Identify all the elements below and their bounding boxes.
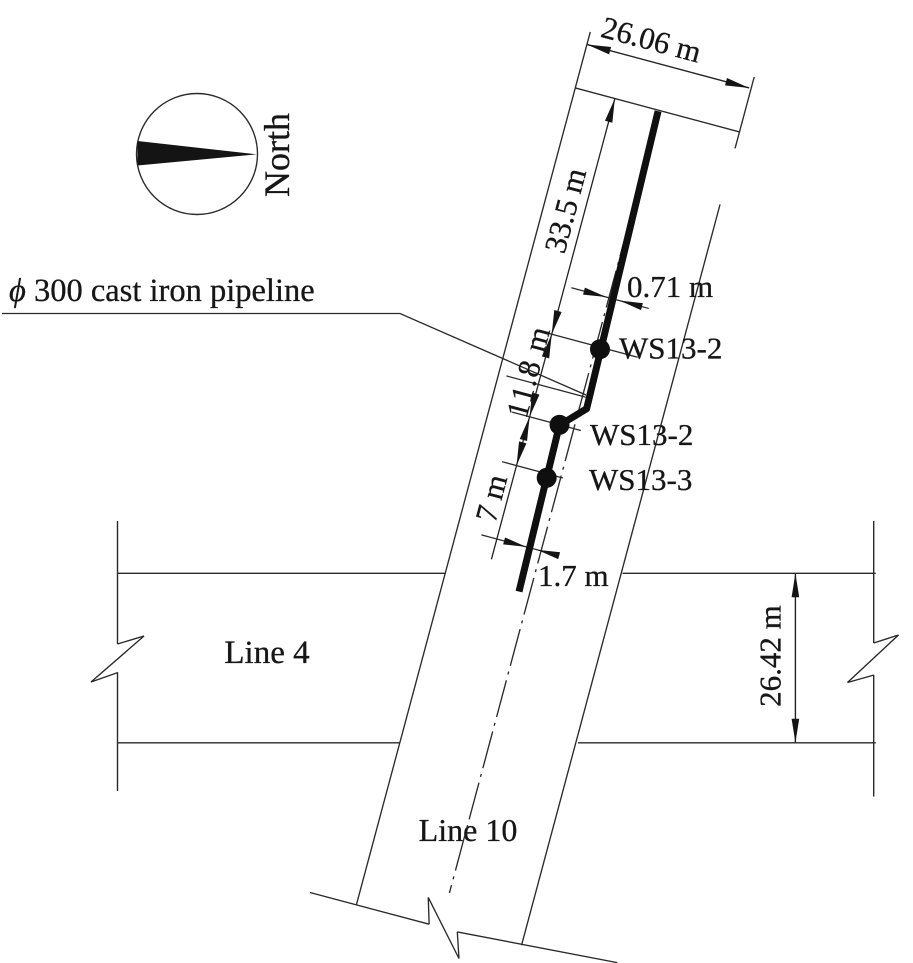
svg-text:1.7 m: 1.7 m: [538, 558, 609, 593]
svg-text:WS13-2: WS13-2: [619, 331, 722, 366]
svg-text:North: North: [257, 113, 297, 197]
svg-text:ϕ 300 cast iron pipeline: ϕ 300 cast iron pipeline: [9, 273, 315, 309]
svg-text:26.42 m: 26.42 m: [753, 605, 788, 707]
svg-text:WS13-3: WS13-3: [589, 462, 692, 497]
svg-text:Line 4: Line 4: [224, 635, 309, 671]
svg-text:0.71 m: 0.71 m: [627, 269, 713, 304]
svg-text:Line 10: Line 10: [419, 812, 518, 848]
svg-text:WS13-2: WS13-2: [590, 417, 693, 452]
